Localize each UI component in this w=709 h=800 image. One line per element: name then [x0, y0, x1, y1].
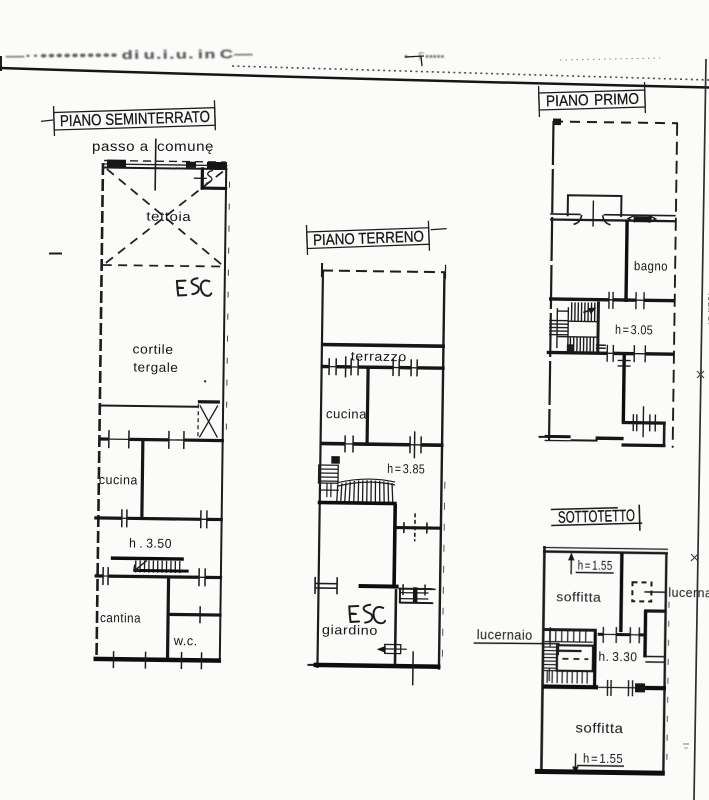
svg-text:SOTTOTETTO: SOTTOTETTO	[558, 507, 636, 527]
svg-text:soffitta: soffitta	[556, 589, 601, 605]
svg-text:lucerna: lucerna	[668, 585, 709, 601]
svg-text:h. 3.30: h. 3.30	[598, 649, 637, 665]
svg-text:—··•••••••••• di u.i.u. in C—: —··•••••••••• di u.i.u. in C—	[6, 47, 254, 63]
svg-text:passo a comunę: passo a comunę	[92, 138, 214, 154]
svg-text:bagno: bagno	[634, 258, 668, 273]
svg-text:w.c.: w.c.	[173, 633, 198, 648]
svg-text:h = 1.55: h = 1.55	[578, 557, 613, 572]
svg-text:cucina: cucina	[326, 406, 367, 422]
svg-text:giardino: giardino	[322, 622, 378, 638]
svg-text:tettoia: tettoia	[146, 209, 191, 225]
svg-text:soffitta: soffitta	[575, 719, 623, 736]
svg-text:h . 3.50: h . 3.50	[129, 535, 172, 551]
svg-text:cortile: cortile	[132, 341, 173, 357]
svg-text:cucina: cucina	[99, 472, 138, 488]
svg-text:h = 3.85: h = 3.85	[387, 461, 425, 477]
svg-text:PIANO PRIMO: PIANO PRIMO	[546, 91, 639, 111]
svg-text:h = 3.05: h = 3.05	[615, 322, 653, 338]
svg-text:h = 1.55: h = 1.55	[583, 751, 623, 767]
svg-text:tergale: tergale	[133, 359, 178, 375]
svg-text:lucernaio: lucernaio	[477, 626, 533, 643]
svg-text:terrazzo: terrazzo	[351, 348, 407, 364]
svg-text:cantina: cantina	[100, 610, 141, 626]
